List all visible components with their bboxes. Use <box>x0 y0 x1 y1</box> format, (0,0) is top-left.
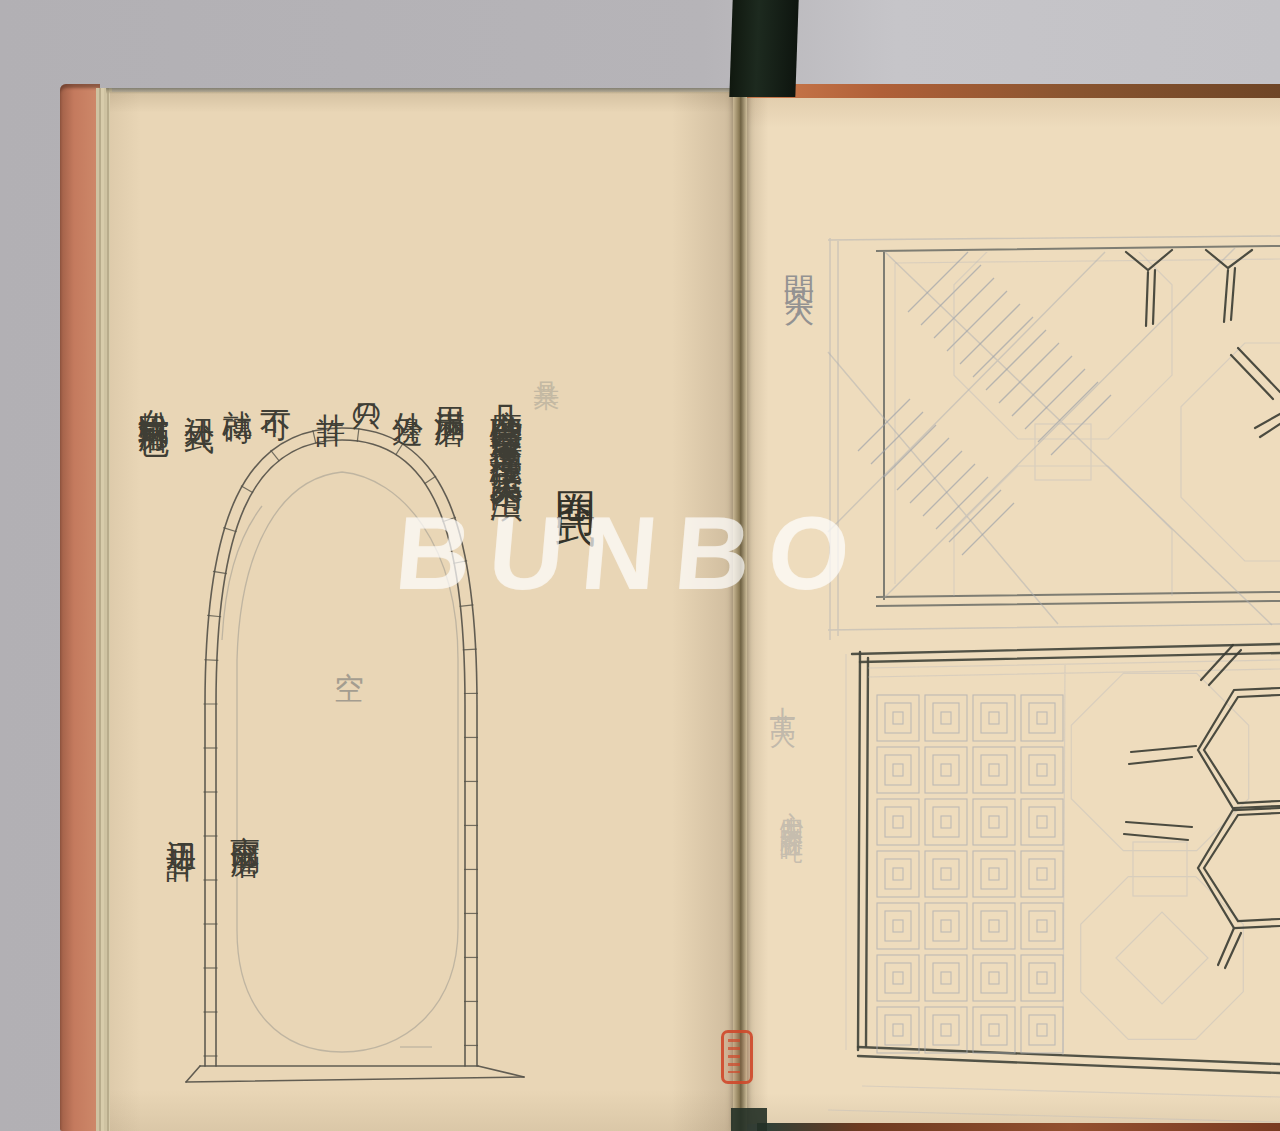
pencil-annotation-lower: 心土四天陳粉五吨 <box>780 794 803 826</box>
note-column: 外邊 <box>392 388 423 396</box>
note-column: 用滿磨 <box>434 382 465 394</box>
body-text-column: 凡磨磚門窓量墻之厚薄授磚之大小内空湏 <box>490 378 523 468</box>
pencil-annotation-top: 間茶大 <box>784 252 814 282</box>
watermark: BUNBO <box>391 494 873 613</box>
bottom-pattern-panel <box>828 644 1280 1122</box>
top-pattern-panel <box>828 221 1280 684</box>
pencil-annotation-middle: 十萬大 <box>770 686 796 710</box>
note-column: 辺外式 <box>184 392 214 404</box>
arch-caption-left: 辺用廿許 <box>166 816 196 832</box>
note-column: 廿許 <box>316 390 345 398</box>
seal-marks <box>728 1039 740 1073</box>
note-column: 只の <box>352 380 381 421</box>
bleedthrough-text: 具業 <box>534 360 560 368</box>
octagon-lattice-faint <box>954 221 1280 684</box>
note-column: 不可 <box>260 385 291 393</box>
hatch-band <box>858 252 1111 555</box>
ink-honeycomb <box>1124 645 1280 968</box>
arch-inner-label: 空 <box>334 648 364 652</box>
octagon-pattern-faint <box>1071 673 1248 1039</box>
meander-pattern <box>877 695 1063 1053</box>
arch-caption-right: 空雨滿磨 <box>230 812 260 828</box>
note-column: 白粉式滿磨可也 <box>138 384 169 405</box>
red-seal-stamp <box>721 1030 753 1084</box>
book-scan: 圈門式 凡磨磚門窓量墻之厚薄授磚之大小内空湏 用滿磨 外邊 只の 廿許 不可 就… <box>0 0 1280 1131</box>
note-column: 就磚 <box>222 386 252 394</box>
section-title: 圈門式 <box>556 460 596 484</box>
